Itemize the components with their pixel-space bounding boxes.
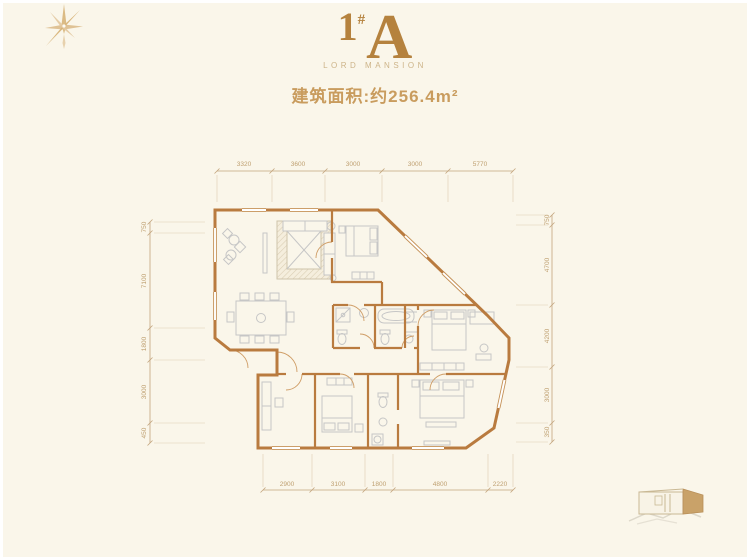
dimensions-top: 3320 3600 3000 3000 5770 [215,161,516,202]
dimensions-right: 750 4700 4200 3000 350 [516,213,555,445]
dimension-label: 2900 [280,481,295,488]
dimension-label: 3100 [331,481,346,488]
dimension-label: 3000 [141,384,148,399]
dimension-label: 4700 [544,257,551,272]
dimension-label: 7100 [141,273,148,288]
furniture-living-room [223,221,336,281]
dimensions-bottom: 2900 3100 1800 4800 2220 [261,454,516,493]
furniture-dining-room [227,293,294,343]
furniture-bedroom-top [339,226,378,279]
dimension-label: 4200 [544,328,551,343]
dimension-label: 5770 [473,161,488,168]
furniture-study [262,382,283,430]
dimension-label: 1800 [372,481,387,488]
dimension-label: 2220 [493,481,508,488]
dimensions-left: 750 7100 1800 3000 450 [141,220,205,446]
dimension-label: 750 [141,221,148,232]
dimension-label: 750 [544,214,551,225]
dimension-label: 1800 [141,336,148,351]
furniture-bedroom-right [420,310,494,370]
dimension-label: 3600 [291,161,306,168]
furniture-bathroom-small [372,393,388,445]
floorplan-page: 1#A LORD MANSION 建筑面积:约256.4m² [0,0,750,560]
dimension-label: 450 [141,427,148,438]
building-logo-icon [627,485,715,527]
dimension-label: 350 [544,426,551,437]
floor-plan-drawing: 3320 3600 3000 3000 5770 2900 3100 [3,3,747,557]
dimension-label: 3320 [237,161,252,168]
dimension-label: 3000 [346,161,361,168]
furniture-bedroom-master [412,380,473,445]
dimension-label: 3000 [544,387,551,402]
dimension-label: 4800 [433,481,448,488]
furniture-bedroom-bottom-middle [322,378,363,432]
dimension-label: 3000 [408,161,423,168]
exterior-walls [215,210,509,448]
